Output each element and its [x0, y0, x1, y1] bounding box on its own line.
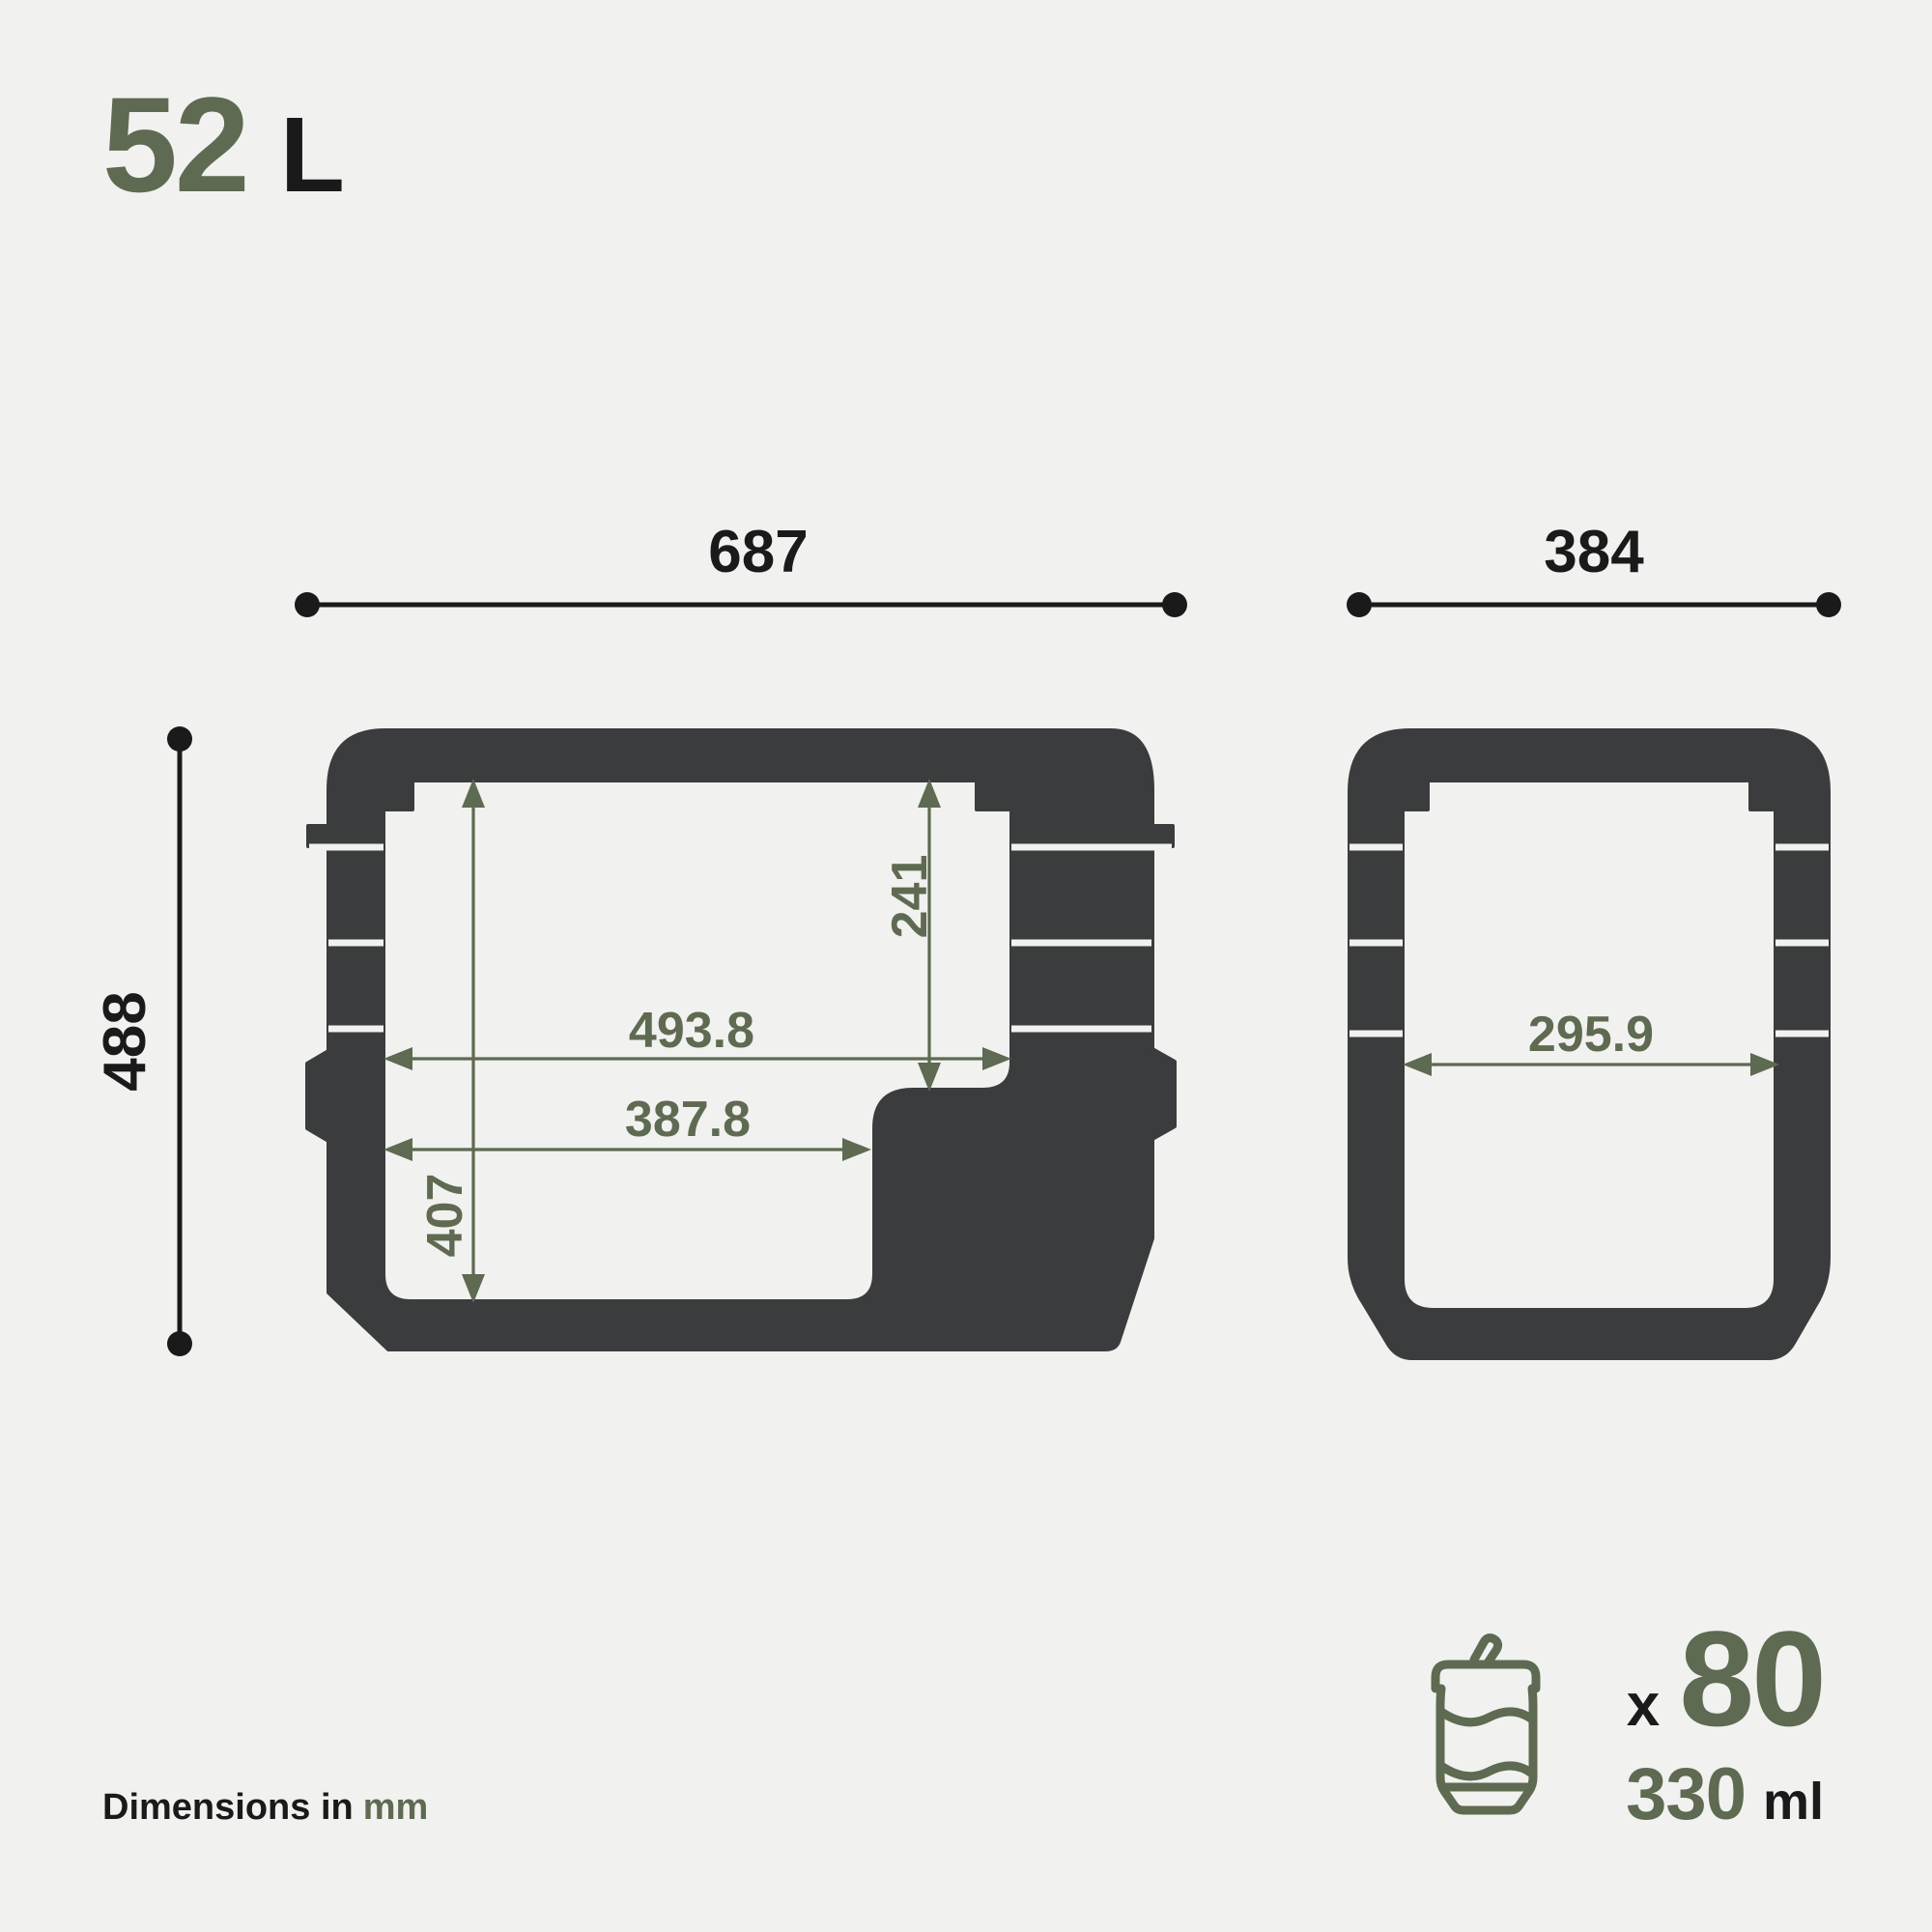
can-volume: 330: [1626, 1758, 1746, 1832]
can-volume-row: 330 ml: [1626, 1758, 1824, 1832]
outer-width-front-dimension: 687: [295, 519, 1187, 617]
can-capacity-block: x 80 330 ml: [1626, 1611, 1824, 1832]
dimensions-note: Dimensions in mm: [102, 1789, 428, 1826]
side-width-label: 384: [1544, 519, 1644, 585]
outer-width-side-dimension: 384: [1347, 519, 1841, 617]
cavity-step-height-dimension: 241: [882, 779, 941, 1092]
cavity-bottom-width-label: 387.8: [625, 1092, 751, 1148]
can-count: 80: [1679, 1611, 1824, 1747]
height-label: 488: [92, 991, 158, 1091]
dimensions-note-text: Dimensions in: [102, 1789, 354, 1826]
side-cavity-width-dimension: 295.9: [1403, 1007, 1779, 1076]
cavity-bottom-width-dimension: 387.8: [384, 1092, 871, 1161]
dimension-infographic: { "title": { "value": "52", "unit": "L" …: [0, 0, 1932, 1932]
multiplier-label: x: [1627, 1676, 1660, 1736]
cavity-step-height-label: 241: [882, 855, 938, 939]
outer-height-dimension: 488: [92, 726, 192, 1356]
cavity-top-width-dimension: 493.8: [384, 1003, 1011, 1070]
cavity-top-width-label: 493.8: [629, 1003, 754, 1059]
soda-can-icon: [1435, 1638, 1536, 1810]
side-cavity-width-label: 295.9: [1528, 1007, 1654, 1063]
can-volume-unit: ml: [1763, 1776, 1824, 1828]
front-width-label: 687: [708, 519, 808, 585]
cavity-height-label: 407: [417, 1174, 473, 1258]
can-count-row: x 80: [1626, 1611, 1824, 1747]
dimensions-note-unit: mm: [363, 1789, 429, 1826]
cavity-height-dimension: 407: [417, 779, 485, 1303]
